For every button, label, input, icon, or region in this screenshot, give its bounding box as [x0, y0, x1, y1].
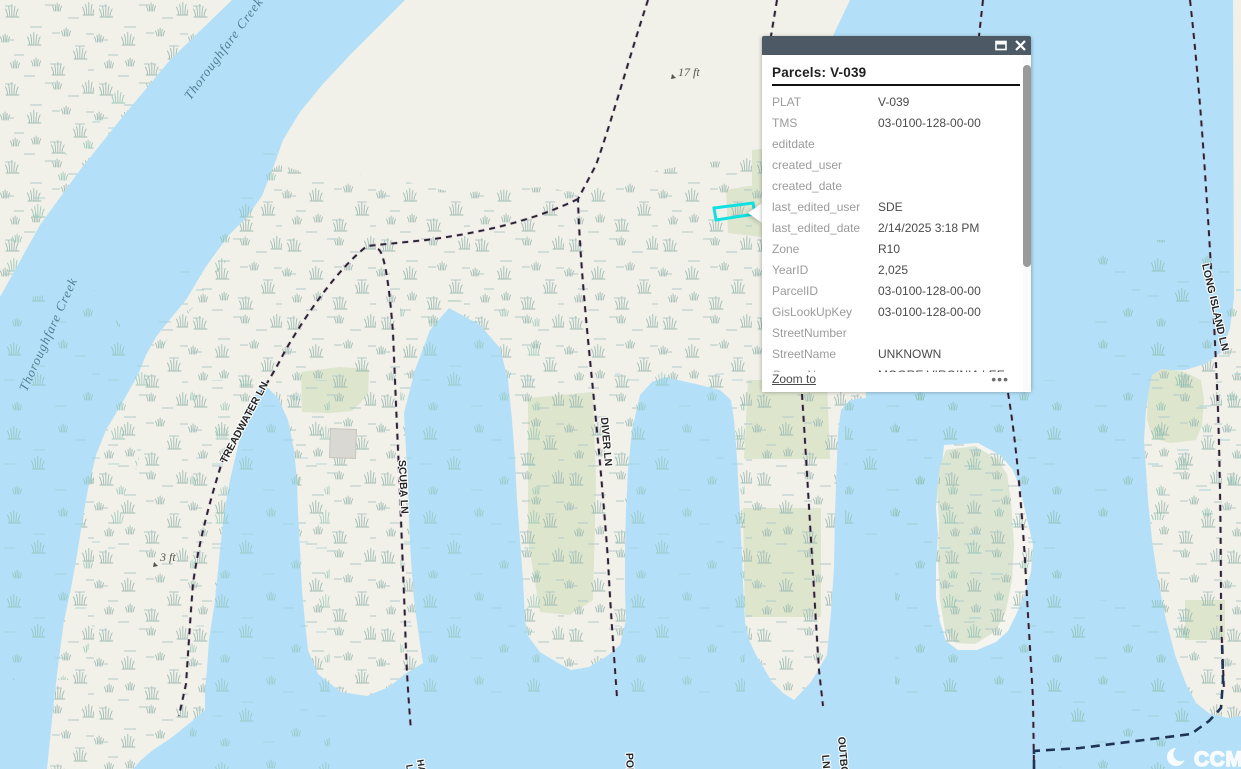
svg-text:CCML: CCML — [1194, 748, 1241, 769]
svg-text:3 ft: 3 ft — [159, 550, 176, 564]
svg-text:17 ft: 17 ft — [678, 65, 700, 79]
svg-text:LN: LN — [819, 754, 832, 769]
svg-text:L: L — [403, 764, 415, 769]
svg-text:POND LN: POND LN — [623, 753, 637, 769]
